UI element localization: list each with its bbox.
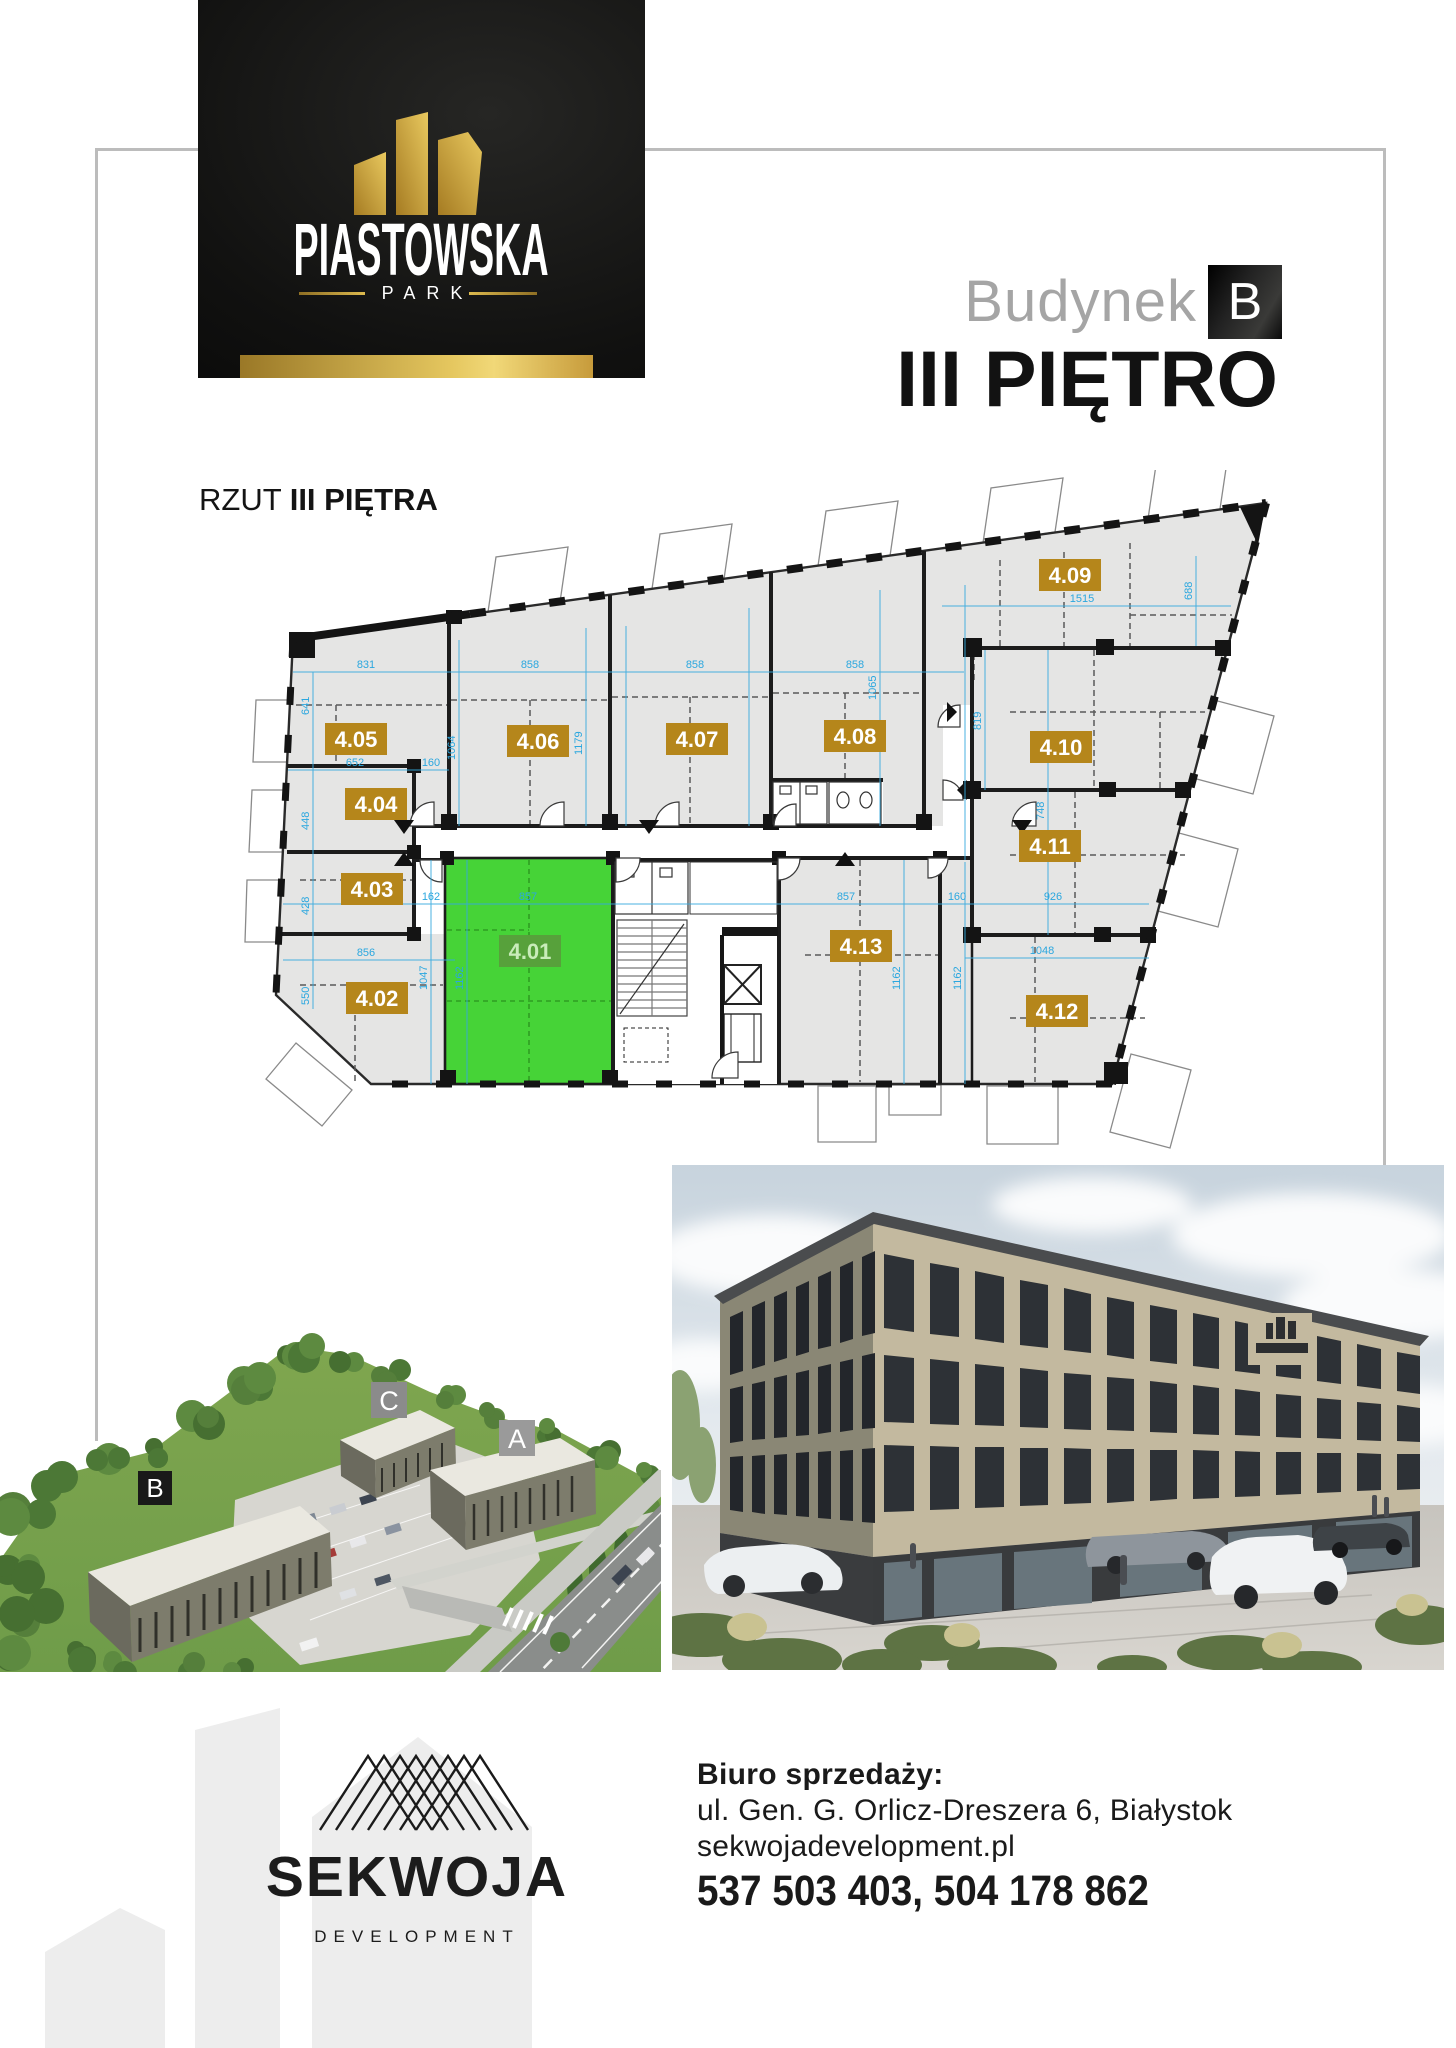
svg-text:1162: 1162	[952, 966, 964, 990]
svg-text:160: 160	[948, 891, 966, 903]
svg-text:858: 858	[846, 659, 864, 671]
svg-text:4.04: 4.04	[355, 792, 399, 817]
svg-text:926: 926	[1044, 891, 1062, 903]
svg-text:857: 857	[837, 891, 855, 903]
svg-text:831: 831	[357, 659, 375, 671]
svg-text:162: 162	[422, 891, 440, 903]
svg-text:B: B	[146, 1473, 163, 1503]
svg-text:748: 748	[1035, 802, 1047, 820]
svg-text:448: 448	[300, 812, 312, 830]
svg-text:4.02: 4.02	[356, 986, 399, 1011]
svg-text:4.13: 4.13	[840, 934, 883, 959]
svg-text:4.11: 4.11	[1029, 834, 1071, 859]
svg-text:A: A	[508, 1424, 526, 1454]
svg-text:4.01: 4.01	[509, 939, 552, 964]
svg-text:652: 652	[346, 757, 364, 769]
svg-text:1065: 1065	[867, 676, 879, 700]
svg-text:550: 550	[300, 987, 312, 1005]
svg-text:C: C	[379, 1386, 399, 1416]
svg-text:4.12: 4.12	[1036, 999, 1079, 1024]
svg-text:1047: 1047	[418, 966, 430, 990]
svg-text:1179: 1179	[573, 731, 585, 755]
svg-text:858: 858	[686, 659, 704, 671]
svg-text:1048: 1048	[1030, 945, 1054, 957]
svg-text:4.10: 4.10	[1040, 735, 1083, 760]
svg-text:4.09: 4.09	[1049, 563, 1092, 588]
svg-text:4.06: 4.06	[517, 729, 560, 754]
svg-text:819: 819	[972, 712, 984, 730]
svg-text:688: 688	[1183, 582, 1195, 600]
svg-text:641: 641	[300, 697, 312, 715]
svg-text:160: 160	[422, 757, 440, 769]
svg-text:1162: 1162	[891, 966, 903, 990]
svg-text:857: 857	[519, 891, 537, 903]
svg-text:1515: 1515	[1070, 593, 1094, 605]
svg-text:4.05: 4.05	[335, 727, 378, 752]
svg-text:428: 428	[300, 897, 312, 915]
svg-text:4.08: 4.08	[834, 724, 877, 749]
svg-text:1162: 1162	[454, 966, 466, 990]
svg-text:856: 856	[357, 947, 375, 959]
svg-text:1064: 1064	[446, 736, 458, 760]
svg-text:858: 858	[521, 659, 539, 671]
svg-text:4.07: 4.07	[676, 727, 719, 752]
svg-text:4.03: 4.03	[351, 877, 394, 902]
